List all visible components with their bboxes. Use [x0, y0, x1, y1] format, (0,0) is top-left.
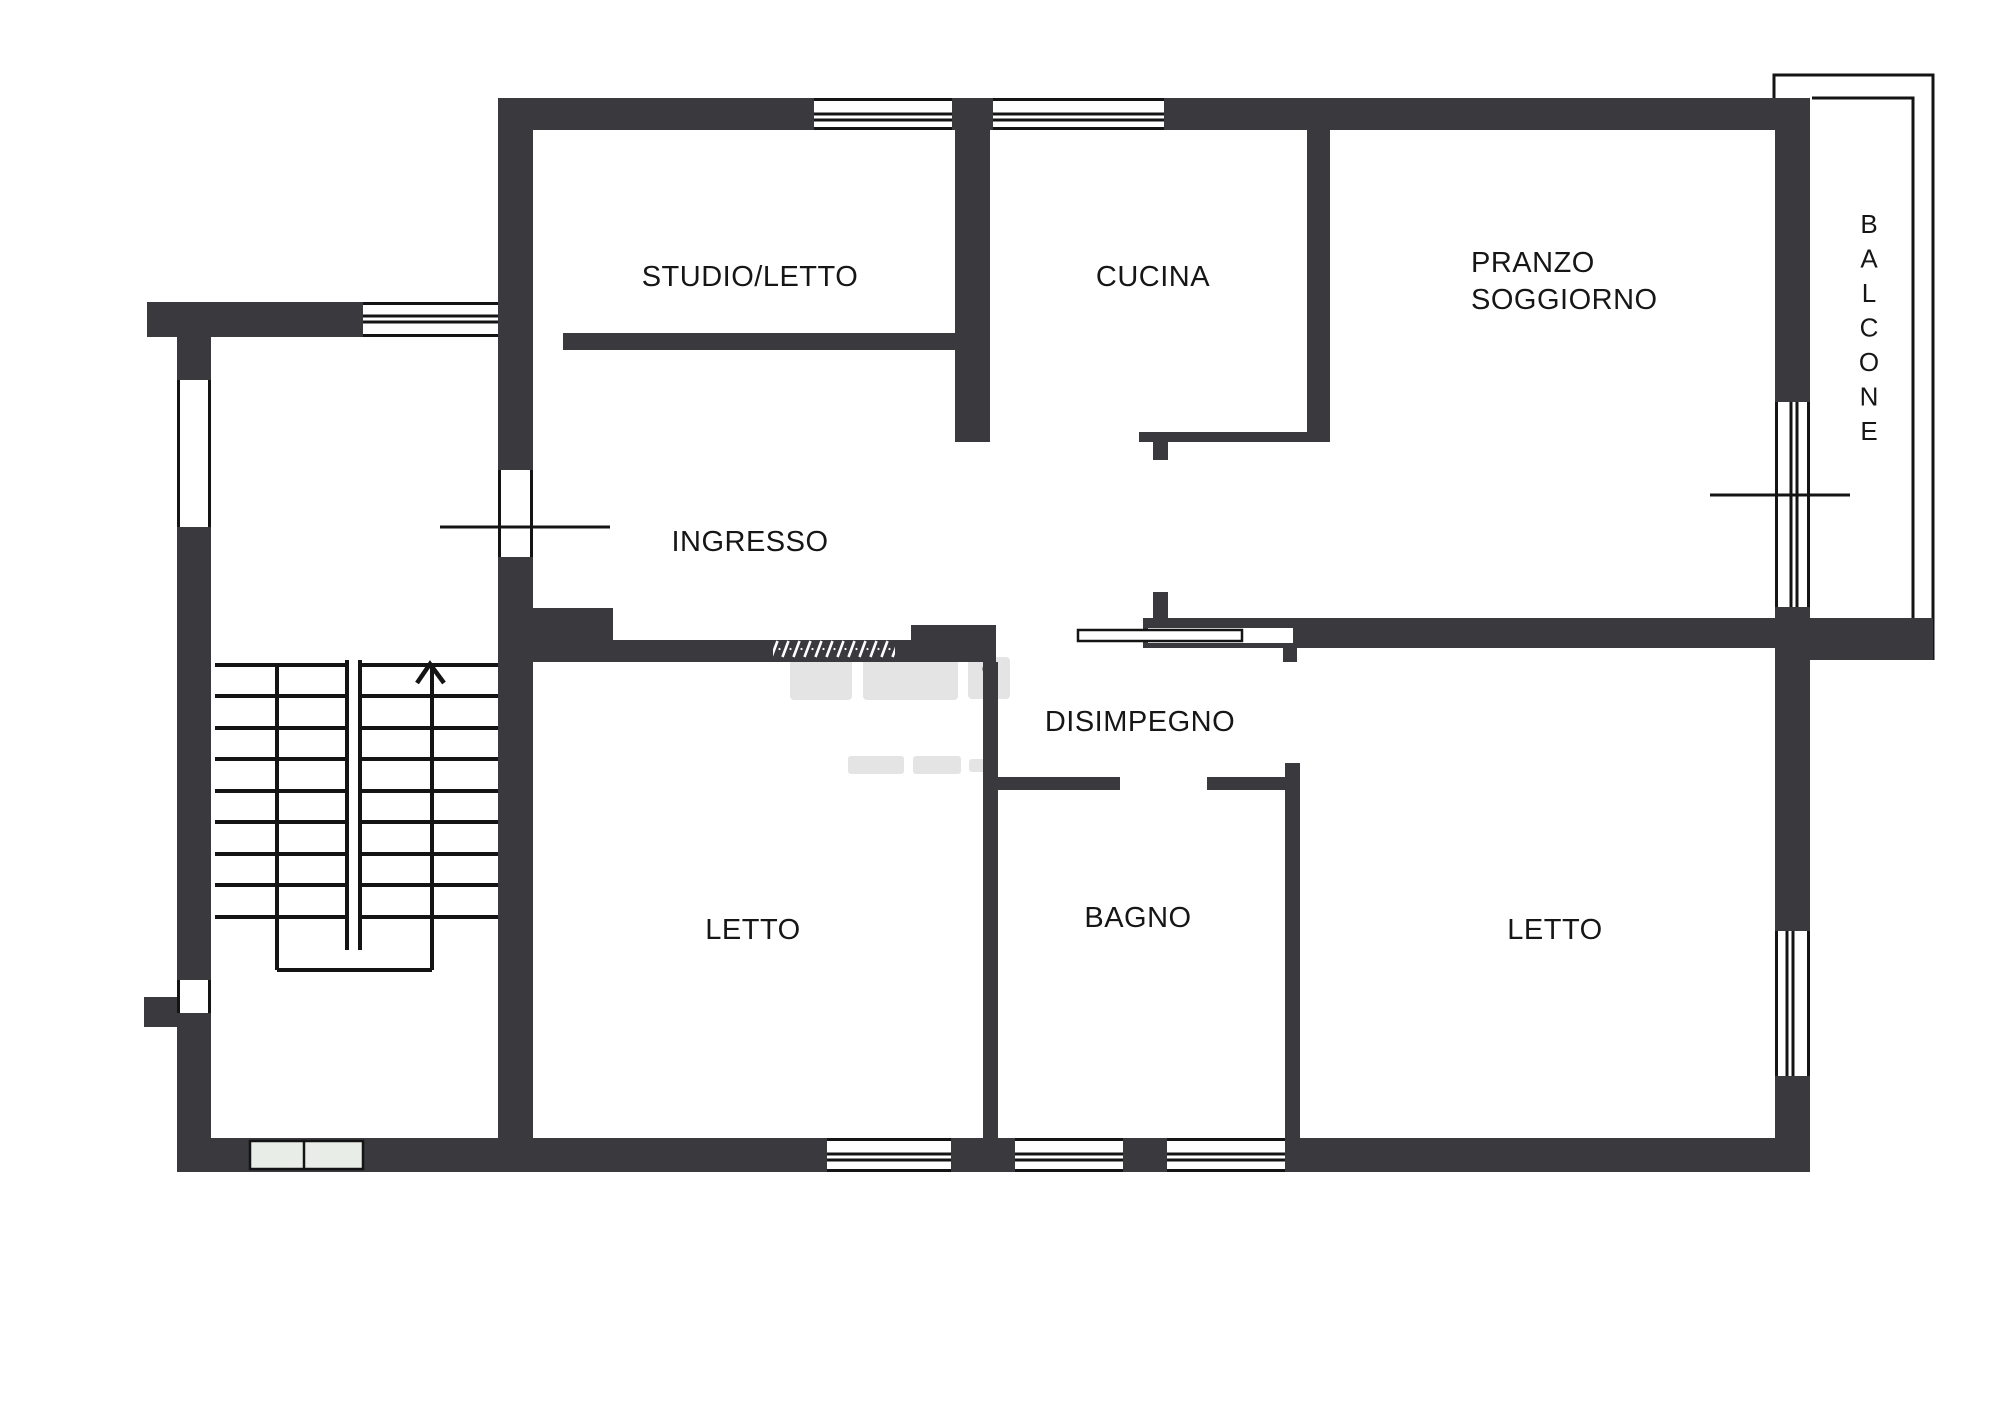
window-annex-bottom — [250, 1141, 363, 1169]
window-bagno-bottom-right — [1167, 1138, 1285, 1172]
wall-cucina-bottom — [1139, 432, 1307, 442]
door-entrance — [440, 470, 610, 557]
wall-studio-bottom — [563, 333, 990, 350]
room-label-studio-letto: STUDIO/LETTO — [642, 261, 859, 293]
wall-balcony-bottom — [1775, 618, 1933, 660]
stair-stringer — [347, 660, 360, 950]
staircase — [215, 660, 498, 970]
annex-pilaster — [144, 997, 177, 1027]
wall-bagno-north-left — [998, 777, 1120, 790]
window-cucina-top — [993, 98, 1164, 130]
window-annex-left-upper — [177, 380, 211, 527]
window-letto-right — [1775, 931, 1810, 1076]
pocket-door-leaf — [1078, 630, 1242, 641]
wall-disimpegno-stub-up — [1153, 592, 1168, 618]
wall-bagno-letto-right — [1285, 763, 1300, 1138]
room-label-letto-right: LETTO — [1507, 914, 1602, 946]
room-label-cucina: CUCINA — [1096, 261, 1210, 293]
room-label-bagno: BAGNO — [1084, 902, 1191, 934]
wall-studio-cucina — [955, 130, 990, 442]
room-label-balcone: BALCONE — [1859, 209, 1879, 446]
room-label-letto-left: LETTO — [705, 914, 800, 946]
floor-plan-drawing: STUDIO/LETTO CUCINA PRANZO SOGGIORNO ING… — [0, 0, 2000, 1423]
wall-cucina-pranzo — [1307, 130, 1330, 442]
wall-ingresso-south-block — [530, 608, 613, 662]
wall-bagno-north-right — [1207, 777, 1285, 790]
floor-plan-page: STUDIO/LETTO CUCINA PRANZO SOGGIORNO ING… — [0, 0, 2000, 1423]
pocket-door-track — [773, 640, 895, 662]
wall-bottom — [177, 1138, 1810, 1172]
room-label-disimpegno: DISIMPEGNO — [1045, 706, 1235, 738]
room-label-pranzo-line2: SOGGIORNO — [1471, 284, 1658, 316]
room-label-ingresso: INGRESSO — [671, 526, 828, 558]
room-labels: STUDIO/LETTO CUCINA PRANZO SOGGIORNO ING… — [642, 209, 1879, 946]
window-letto-left-bottom — [827, 1138, 951, 1172]
wall-left — [498, 98, 533, 1172]
wall-letto-bagno — [983, 662, 998, 1138]
wall-ingresso-south-step — [911, 625, 996, 640]
window-bagno-bottom-left — [1015, 1138, 1123, 1172]
window-studio-top — [814, 98, 952, 130]
wall-cucina-bottom-stub — [1153, 442, 1168, 460]
window-annex-left-lower — [177, 980, 211, 1013]
window-annex-top — [363, 302, 498, 337]
room-label-pranzo-line1: PRANZO — [1471, 247, 1595, 279]
door-balcony — [1710, 402, 1850, 607]
wall-disimpegno-cap-down — [1283, 648, 1297, 662]
